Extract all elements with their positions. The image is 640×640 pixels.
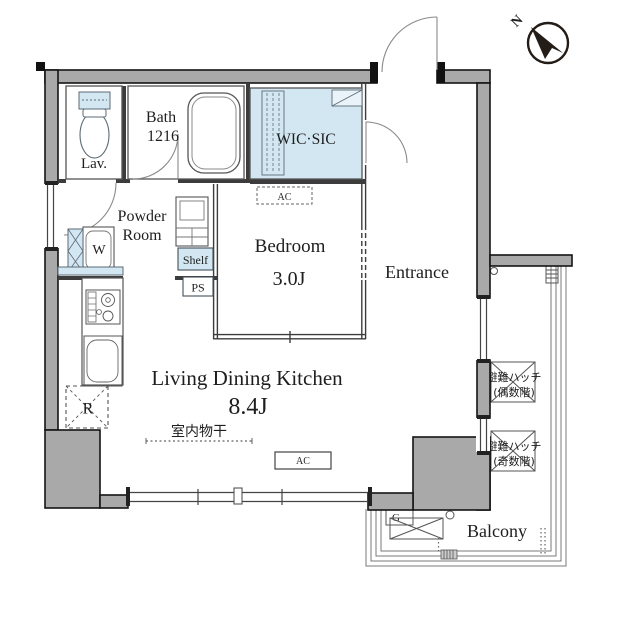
hatch-even-label-1: 避難ハッチ	[487, 370, 542, 384]
bedroom-walls	[213, 184, 366, 343]
hatch-odd-label-2: (奇数階)	[493, 454, 535, 468]
lav-label: Lav.	[81, 156, 107, 172]
evacuation-hatch-odd: 避難ハッチ (奇数階)	[487, 431, 542, 471]
floorplan-page: 避難ハッチ (偶数階) 避難ハッチ (奇数階) G	[0, 0, 640, 640]
hatch-even-label-2: (偶数階)	[493, 385, 535, 399]
ac-slot-ldk: AC	[275, 452, 331, 469]
kitchen: R	[58, 267, 123, 428]
wic-sic-room: WIC·SIC	[250, 88, 407, 179]
bath-size-label: 1216	[147, 128, 179, 145]
refrigerator-label: R	[83, 401, 94, 418]
balcony-railing-line	[376, 266, 556, 556]
shelf-label: Shelf	[183, 253, 208, 267]
window-bottom-sliding	[126, 487, 372, 506]
pipe-space-box: PS	[183, 277, 213, 296]
bedroom: AC Bedroom 3.0J	[255, 187, 326, 290]
balcony-label: Balcony	[467, 521, 527, 541]
balcony-area: 避難ハッチ (偶数階) 避難ハッチ (奇数階) G	[366, 266, 566, 566]
ac-ldk-label: AC	[296, 456, 310, 467]
pipe-space-label: PS	[191, 281, 204, 295]
lavatory-room: Lav.	[66, 86, 122, 179]
bathtub	[188, 93, 240, 173]
toilet	[79, 92, 110, 158]
wic-door-arc	[366, 122, 407, 163]
indoor-drying-rail: 室内物干	[146, 423, 252, 444]
bath-label: Bath	[146, 109, 176, 126]
refrigerator-slot: R	[66, 386, 108, 428]
living-dining-kitchen: Living Dining Kitchen 8.4J 室内物干 AC	[146, 366, 343, 469]
washer-label: W	[92, 243, 106, 258]
water-heater-box	[390, 518, 443, 539]
shelf-box: Shelf	[178, 248, 213, 270]
powder-room-label-2: Room	[122, 227, 162, 244]
floorplan-drawing: 避難ハッチ (偶数階) 避難ハッチ (奇数階) G	[0, 0, 640, 640]
ac-slot-bedroom: AC	[257, 187, 312, 204]
north-label: N	[509, 13, 527, 31]
bedroom-size-label: 3.0J	[273, 268, 306, 290]
compass: N	[509, 13, 568, 63]
vanity-hatched	[68, 229, 83, 272]
ldk-size-label: 8.4J	[228, 394, 267, 420]
wic-sic-label: WIC·SIC	[276, 131, 335, 148]
bath-room: Bath 1216	[128, 86, 244, 179]
window-right-lower	[476, 415, 490, 455]
entrance: Entrance	[382, 17, 449, 282]
wic-shelf-corner	[332, 90, 362, 106]
entrance-label: Entrance	[385, 262, 449, 282]
bedroom-label: Bedroom	[255, 236, 326, 257]
washbasin-counter	[176, 197, 208, 246]
entry-door	[382, 17, 437, 72]
drain-grate	[441, 550, 457, 559]
drain-circle	[446, 511, 454, 519]
powder-room-label-1: Powder	[118, 208, 168, 225]
ldk-label: Living Dining Kitchen	[151, 366, 343, 390]
evacuation-hatch-even: 避難ハッチ (偶数階)	[487, 362, 542, 402]
ac-bedroom-label: AC	[278, 192, 292, 203]
hatch-odd-label-1: 避難ハッチ	[487, 439, 542, 453]
window-right-upper	[476, 295, 490, 363]
window-left	[44, 181, 59, 251]
indoor-drying-label: 室内物干	[171, 423, 227, 440]
drain-circle	[491, 268, 498, 275]
